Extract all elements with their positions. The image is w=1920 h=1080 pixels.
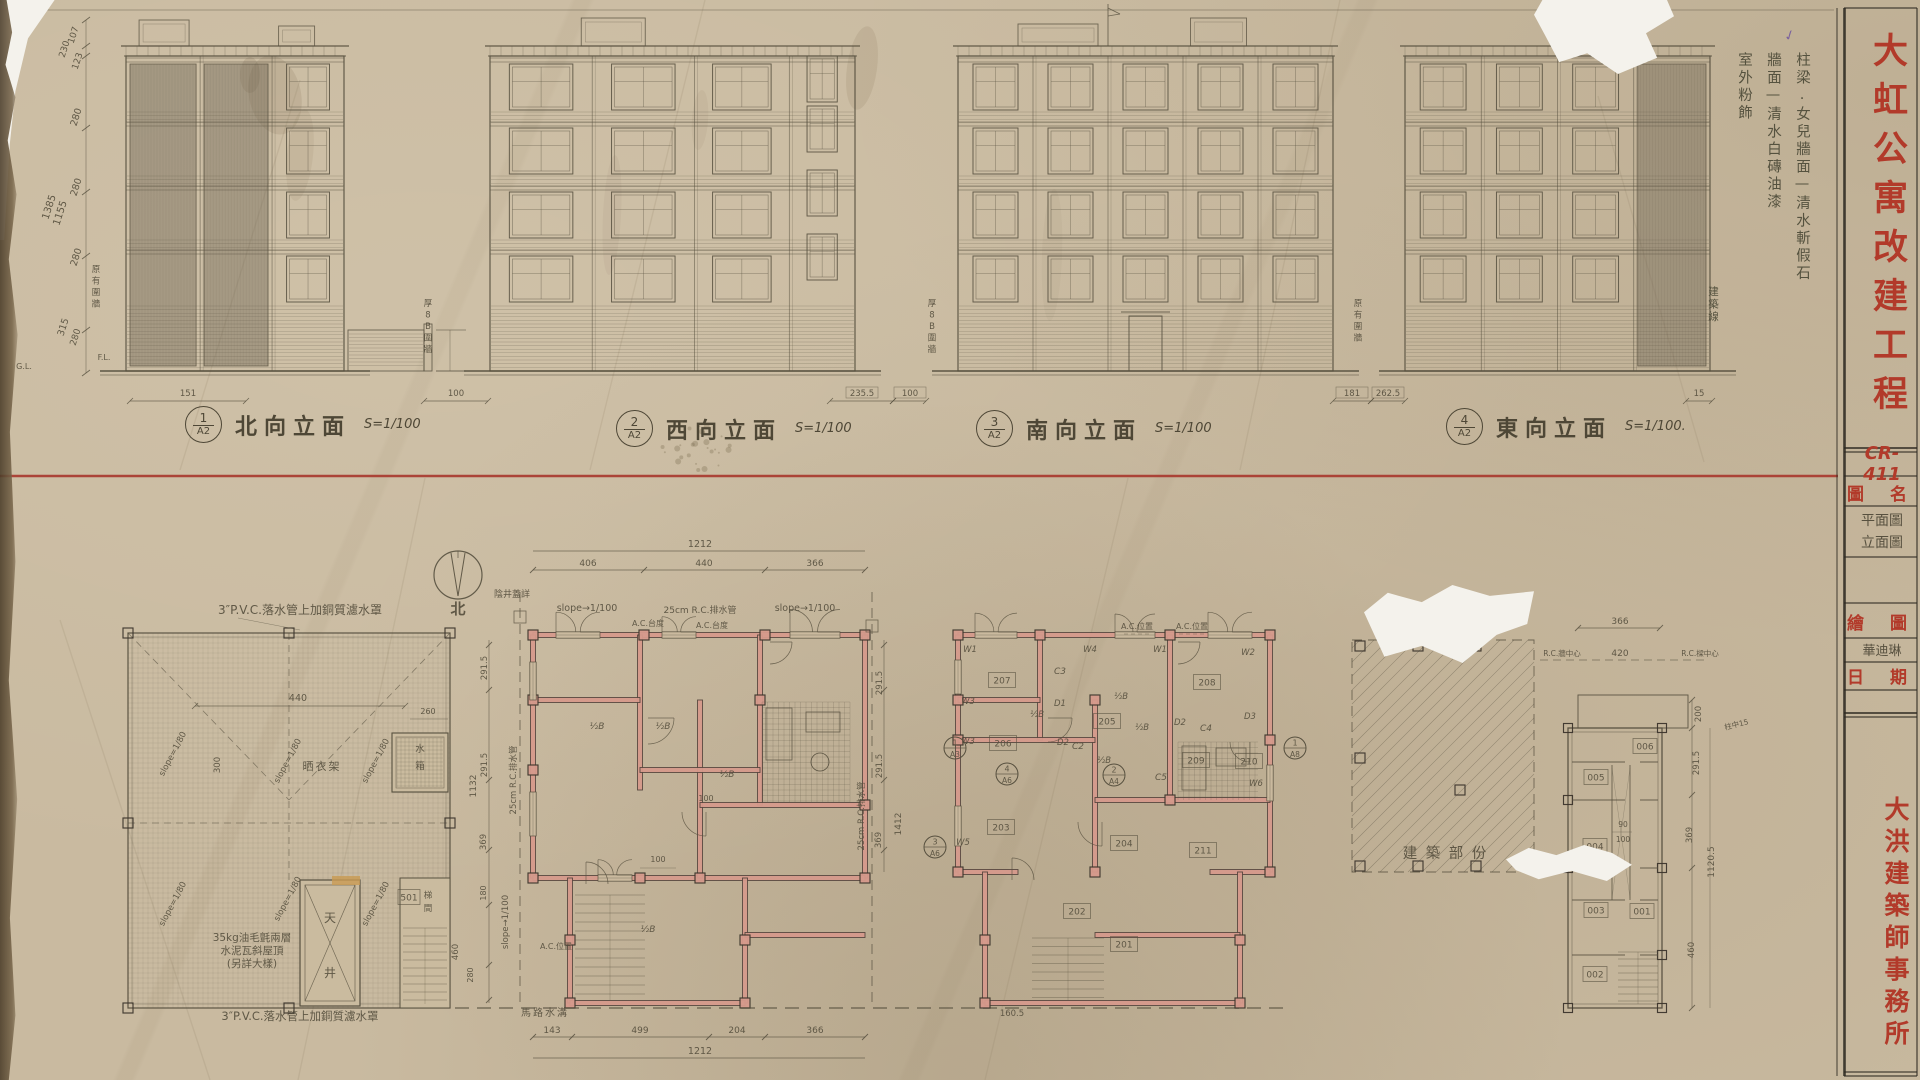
detail-ref-bubble: 4 A2 [1446, 408, 1483, 445]
wall-thickness-label: ½B [1114, 692, 1128, 702]
drawing-text: 291.5 [480, 753, 490, 777]
building-line-label: 建築線 [1706, 286, 1721, 324]
ground-dim-label: 100 [902, 389, 918, 399]
vertical-label: 原 [92, 265, 101, 275]
vertical-label: 間 [424, 904, 433, 914]
dim-label: 315 [56, 317, 72, 338]
slope-label: slope→1/100 [557, 603, 618, 614]
slope-label: slope→1/100 [775, 603, 836, 614]
slope-label: slope=1/80 [360, 880, 392, 928]
detail-ref-bubble: 3 A2 [976, 410, 1013, 447]
vertical-label: 原 [1354, 299, 1363, 309]
floor-plan-c-drawing: 201202203204205206207208209210211W1W1W2W… [856, 592, 1306, 1019]
drawing-text: 406 [579, 559, 596, 569]
dim-label: 280 [69, 327, 84, 347]
window-label: W5 [956, 838, 970, 848]
plan-note: A.C.位置 [1121, 621, 1153, 631]
finish-note-col2: 牆面—清水白磚油漆 [1760, 52, 1784, 352]
drawing-name-line1: 平面圖 [1846, 508, 1918, 532]
wall-thickness-label: ½B [1030, 710, 1044, 720]
vertical-label: 有 [92, 276, 101, 287]
drawing-number: CR-411 [1846, 452, 1918, 476]
vertical-label: 有 [1354, 310, 1363, 321]
door-label: D2 [1174, 718, 1186, 728]
field-drawing-name-label: 圖 名 [1846, 478, 1918, 506]
roof-note: 3″P.V.C.落水管上加銅質濾水罩 [218, 602, 382, 617]
elevation-south-drawing [932, 4, 1359, 375]
vertical-label: 牆 [1354, 333, 1363, 344]
drawing-text: 369 [1685, 827, 1695, 843]
window-label: W3 [961, 697, 975, 707]
finish-note-col1: 柱梁.女兒牆面—清水斬假石 [1789, 52, 1813, 352]
vertical-label: 圍 [424, 334, 433, 344]
ground-dim-label: 15 [1694, 389, 1705, 399]
vertical-label: 井 [324, 966, 336, 980]
ground-dim-label: 100 [448, 389, 464, 399]
field-date-label: 日 期 [1846, 662, 1918, 689]
roof-note: (另詳大樣) [227, 957, 277, 970]
finish-notes: 柱梁.女兒牆面—清水斬假石 牆面—清水白磚油漆 室外粉飾 [1731, 52, 1813, 352]
door-label: D1 [1054, 699, 1066, 709]
room-tag: 201 [1115, 941, 1132, 951]
plan-note: A.C.位置 [1176, 621, 1208, 631]
plan-note: R.C.牆中心 [1543, 648, 1581, 658]
elevation-caption-west: 2 A2 西向立面 S=1/100 [616, 410, 852, 447]
room-tag: 203 [992, 824, 1009, 834]
ref-number: 3 [984, 416, 1006, 430]
vertical-label: 天 [324, 911, 336, 925]
dim-label: 300 [213, 757, 223, 773]
elevation-scale: S=1/100 [795, 421, 852, 436]
drawing-text: 366 [806, 559, 823, 569]
plan-note: R.C.樑中心 [1681, 648, 1719, 658]
drawing-text: 440 [695, 559, 712, 569]
existing-building-area: 建築部份 [1352, 640, 1534, 872]
room-tag: 006 [1636, 743, 1653, 753]
vertical-label: 厚 [928, 299, 937, 309]
vertical-label: 圍 [928, 334, 937, 344]
dim-total-label: 1212 [688, 1046, 712, 1057]
ground-dim-label: 262.5 [1376, 389, 1400, 399]
drafter-name: 華迪琳 [1846, 638, 1918, 660]
existing-block-label: 部 [1449, 845, 1464, 862]
existing-block-label: 築 [1426, 844, 1441, 862]
drawing-text: 499 [631, 1026, 648, 1036]
drawing-text: 100 [698, 794, 713, 803]
ref-number: 1 [193, 412, 215, 426]
ref-sheet: A2 [1458, 428, 1471, 439]
room-tag: 002 [1586, 971, 1603, 981]
detail-ref-bubble: 1 A2 [185, 406, 222, 443]
elevation-caption-north: 1 A2 北向立面 S=1/100 [185, 406, 421, 443]
ground-dim-label: 235.5 [850, 389, 874, 399]
drawing-text: 291.5 [480, 656, 490, 680]
door-label: D3 [1244, 712, 1256, 722]
elevation-title: 南向立面 [1026, 413, 1142, 445]
firm-name: 大洪建築師事務所 [1851, 784, 1913, 1064]
dim-label: 230 [58, 39, 73, 59]
plan-note: 陰井蓋詳 [494, 588, 530, 600]
vertical-label: 厚 [424, 299, 433, 309]
vertical-label: 圍 [92, 288, 101, 298]
detail-ref-sheet: A4 [1109, 777, 1119, 786]
drawing-text: 143 [543, 1026, 560, 1036]
detail-ref-number: 2 [1111, 766, 1116, 775]
dim-label: 420 [1611, 649, 1628, 659]
window-label: W2 [1241, 648, 1255, 658]
elevation-title: 東向立面 [1496, 411, 1612, 443]
room-tag: 207 [993, 677, 1010, 687]
vertical-label: 8 [929, 311, 934, 321]
detail-ref-bubble: 2 A2 [616, 410, 653, 447]
north-label: 北 [450, 600, 465, 618]
existing-block-label: 份 [1472, 845, 1487, 862]
window-label: W4 [1083, 645, 1097, 655]
wall-thickness-label: ½B [656, 722, 671, 732]
level-label: G.L. [16, 362, 32, 371]
ref-number: 2 [624, 416, 646, 430]
elevation-scale: S=1/100. [1625, 419, 1686, 434]
drawing-text: 369 [479, 834, 489, 850]
elevation-title: 北向立面 [235, 409, 351, 441]
slope-label: slope=1/80 [272, 737, 304, 785]
finish-note-col3: 室外粉飾 [1731, 52, 1755, 352]
plan-note: A.C.台度 [632, 618, 664, 628]
project-title: 大虹公寓改建工程 [1851, 16, 1913, 440]
plan-note: 柱中15 [1723, 716, 1749, 732]
slope-label: slope→1/100 [501, 895, 511, 949]
floor-plan-e-drawing: 001002003004005006366R.C.牆中心420R.C.樑中心柱中… [1540, 617, 1750, 1013]
drawing-text: 200 [1694, 706, 1704, 722]
room-tag: 001 [1633, 908, 1650, 918]
elevation-scale: S=1/100 [364, 417, 421, 432]
drawing-text: 100 [650, 855, 665, 864]
dim-total-label: 1132 [469, 775, 479, 798]
room-tag: 204 [1115, 840, 1132, 850]
drawing-text: 291.5 [875, 754, 885, 778]
north-compass: 北 [434, 551, 482, 618]
drawing-text: 280 [466, 967, 475, 982]
wall-thickness-label: ½B [720, 770, 735, 780]
dim-total-label: 1412 [894, 813, 904, 836]
vertical-label: 牆 [928, 344, 937, 355]
elevation-caption-east: 4 A2 東向立面 S=1/100. [1446, 408, 1686, 445]
room-tag: 208 [1198, 679, 1215, 689]
room-tag: 003 [1587, 907, 1604, 917]
room-tag: 205 [1098, 718, 1115, 728]
drawing-text: 460 [451, 944, 461, 960]
slope-label: slope=1/80 [272, 875, 304, 923]
drawing-canvas: 1072301232802802803152801385115515110023… [0, 0, 1920, 1080]
detail-ref-sheet: A8 [1290, 750, 1300, 759]
drawing-text: 204 [728, 1026, 745, 1036]
vertical-label: 牆 [92, 299, 101, 310]
drawing-text: 100 [1616, 835, 1631, 844]
drawing-text: 369 [874, 832, 884, 848]
plan-note: 25cm R.C.排水管 [856, 782, 867, 851]
room-tag: 005 [1587, 774, 1604, 784]
column-label: C4 [1200, 724, 1212, 734]
drawing-text: 291.5 [875, 671, 885, 695]
elevation-title: 西向立面 [666, 413, 782, 445]
dim-label: 440 [289, 693, 307, 704]
dim-label: 366 [1611, 617, 1628, 627]
slope-label: slope=1/80 [157, 730, 189, 778]
field-drafter-label: 繪 圖 [1846, 606, 1918, 636]
drawing-text: 460 [1687, 942, 1697, 958]
drying-rack-label: 晒衣架 [303, 759, 342, 773]
dim-label: 280 [69, 247, 85, 268]
room-tag: 206 [994, 740, 1011, 750]
elevation-scale: S=1/100 [1155, 421, 1212, 436]
dim-total-label: 1212 [688, 539, 712, 550]
detail-ref-number: 1 [1292, 739, 1297, 748]
ref-sheet: A2 [628, 430, 641, 441]
dim-label: 260 [420, 707, 435, 716]
plan-note: 25cm R.C.排水管 [664, 604, 737, 616]
drawing-sheet: 1072301232802802803152801385115515110023… [0, 0, 1920, 1080]
drawing-text: 90 [1618, 820, 1628, 829]
drawing-text: 291.5 [1692, 751, 1702, 775]
vertical-label: 牆 [424, 344, 433, 355]
room-tag: 211 [1194, 847, 1211, 857]
detail-ref-number: 1 [952, 739, 957, 748]
vertical-label: 箱 [415, 760, 425, 772]
elevation-caption-south: 3 A2 南向立面 S=1/100 [976, 410, 1212, 447]
vertical-label: 8 [425, 311, 430, 321]
drawing-text: 366 [806, 1026, 823, 1036]
wall-thickness-label: ½B [1135, 723, 1149, 733]
roof-note: 35kg油毛氈兩層 [213, 931, 292, 944]
room-tag: 501 [400, 894, 417, 904]
vertical-label: B [425, 322, 431, 332]
detail-ref-sheet: A3 [950, 750, 960, 759]
column-label: C5 [1155, 773, 1167, 783]
wall-thickness-label: ½B [1097, 756, 1111, 766]
elevation-east-drawing [1379, 22, 1736, 375]
dim-label: 123 [71, 52, 86, 71]
ground-dim-label: 151 [180, 389, 196, 399]
level-label: F.L. [98, 353, 111, 362]
vertical-label: 梯 [424, 890, 433, 901]
elevation-west-drawing [464, 18, 881, 375]
plan-note: A.C.台度 [696, 620, 728, 630]
room-tag: 209 [1187, 757, 1204, 767]
vertical-label: 水 [415, 743, 425, 755]
dim-label: 160.5 [1000, 1009, 1024, 1019]
plan-note: 25cm R.C.排水管 [508, 746, 519, 815]
room-tag: 210 [1240, 758, 1257, 768]
room-tag: 202 [1068, 908, 1085, 918]
door-label: D2 [1057, 738, 1069, 748]
roof-note: 水泥瓦斜屋頂 [221, 944, 284, 957]
column-label: C3 [1054, 667, 1066, 677]
detail-ref-number: 3 [932, 838, 937, 847]
wall-thickness-label: ½B [641, 925, 656, 935]
existing-block-label: 建 [1403, 845, 1418, 862]
detail-ref-sheet: A6 [1002, 776, 1012, 785]
plan-note: A.C.位置 [540, 941, 572, 951]
window-label: W1 [963, 645, 977, 655]
ground-dim-label: 181 [1344, 389, 1360, 399]
roof-note: 3″P.V.C.落水管上加銅質濾水罩 [221, 1009, 378, 1023]
ref-number: 4 [1454, 414, 1476, 428]
dim-total-label: 1120.5 [1707, 846, 1717, 878]
ref-sheet: A2 [197, 426, 210, 437]
detail-ref-number: 4 [1004, 765, 1009, 774]
vertical-label: B [929, 322, 935, 332]
window-label: W3 [961, 737, 975, 747]
window-label: W1 [1153, 645, 1167, 655]
dim-label: 280 [69, 107, 85, 128]
roof-plan-drawing: 水箱天井梯間501slope=1/80slope=1/80slope=1/80s… [123, 602, 455, 1023]
drawing-text: 180 [479, 885, 488, 900]
slope-label: slope=1/80 [157, 880, 189, 928]
vertical-label: 圍 [1354, 322, 1363, 332]
detail-ref-sheet: A6 [930, 849, 940, 858]
column-label: C2 [1072, 742, 1084, 752]
drawing-name-line2: 立面圖 [1846, 530, 1918, 554]
wall-thickness-label: ½B [590, 722, 605, 732]
window-label: W6 [1249, 779, 1263, 789]
ref-sheet: A2 [988, 430, 1001, 441]
